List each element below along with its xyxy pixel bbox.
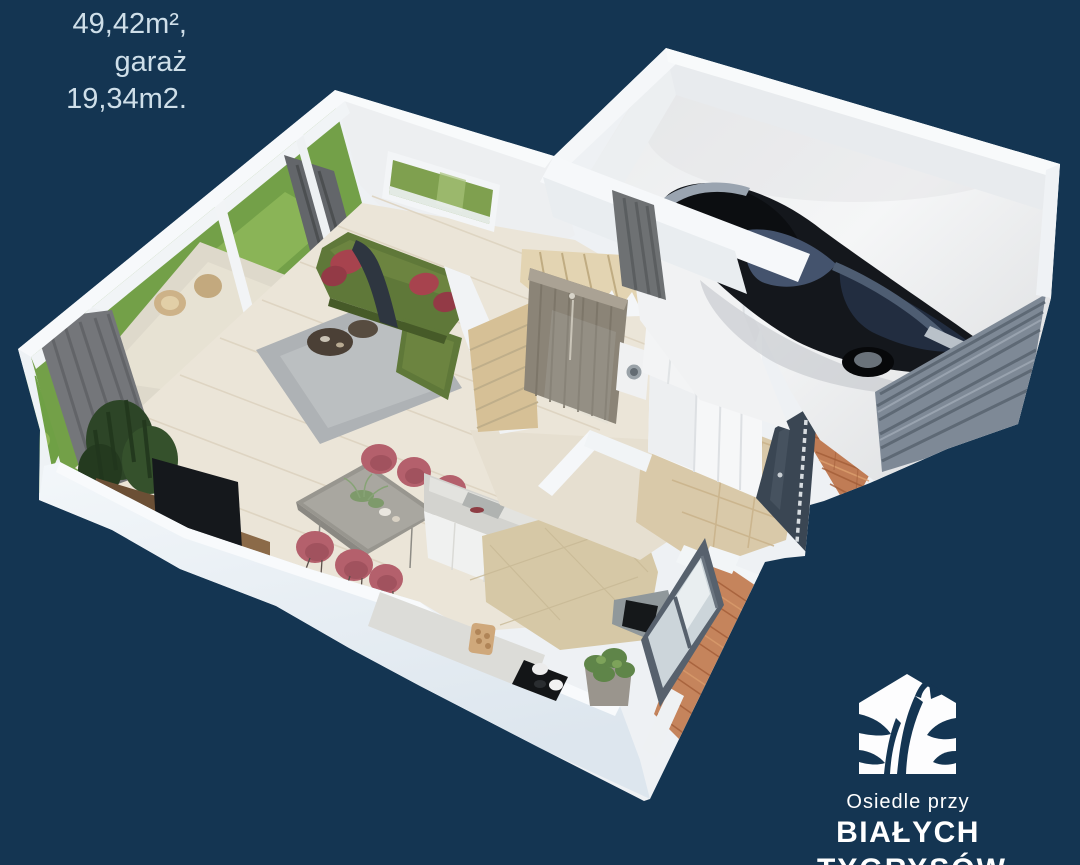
svg-text:TYGRYSÓW: TYGRYSÓW xyxy=(817,852,1007,865)
svg-text:49,42m²,: 49,42m², xyxy=(73,8,187,40)
svg-text:Osiedle przy: Osiedle przy xyxy=(846,791,969,813)
svg-text:garaż: garaż xyxy=(114,46,187,78)
svg-text:19,34m2.: 19,34m2. xyxy=(66,83,187,115)
svg-text:BIAŁYCH: BIAŁYCH xyxy=(836,816,980,849)
